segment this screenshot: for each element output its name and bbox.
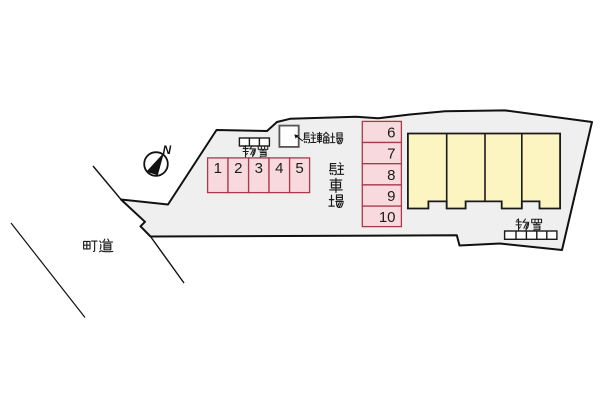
svg-text:4: 4 bbox=[275, 160, 283, 177]
svg-text:1: 1 bbox=[214, 160, 222, 177]
svg-text:7: 7 bbox=[387, 146, 395, 163]
svg-text:5: 5 bbox=[295, 160, 303, 177]
svg-text:2: 2 bbox=[234, 160, 242, 177]
svg-text:9: 9 bbox=[387, 188, 395, 205]
svg-text:8: 8 bbox=[387, 167, 395, 184]
svg-text:N: N bbox=[163, 143, 172, 157]
svg-text:3: 3 bbox=[255, 160, 263, 177]
svg-text:6: 6 bbox=[387, 124, 395, 141]
svg-text:10: 10 bbox=[379, 209, 396, 226]
